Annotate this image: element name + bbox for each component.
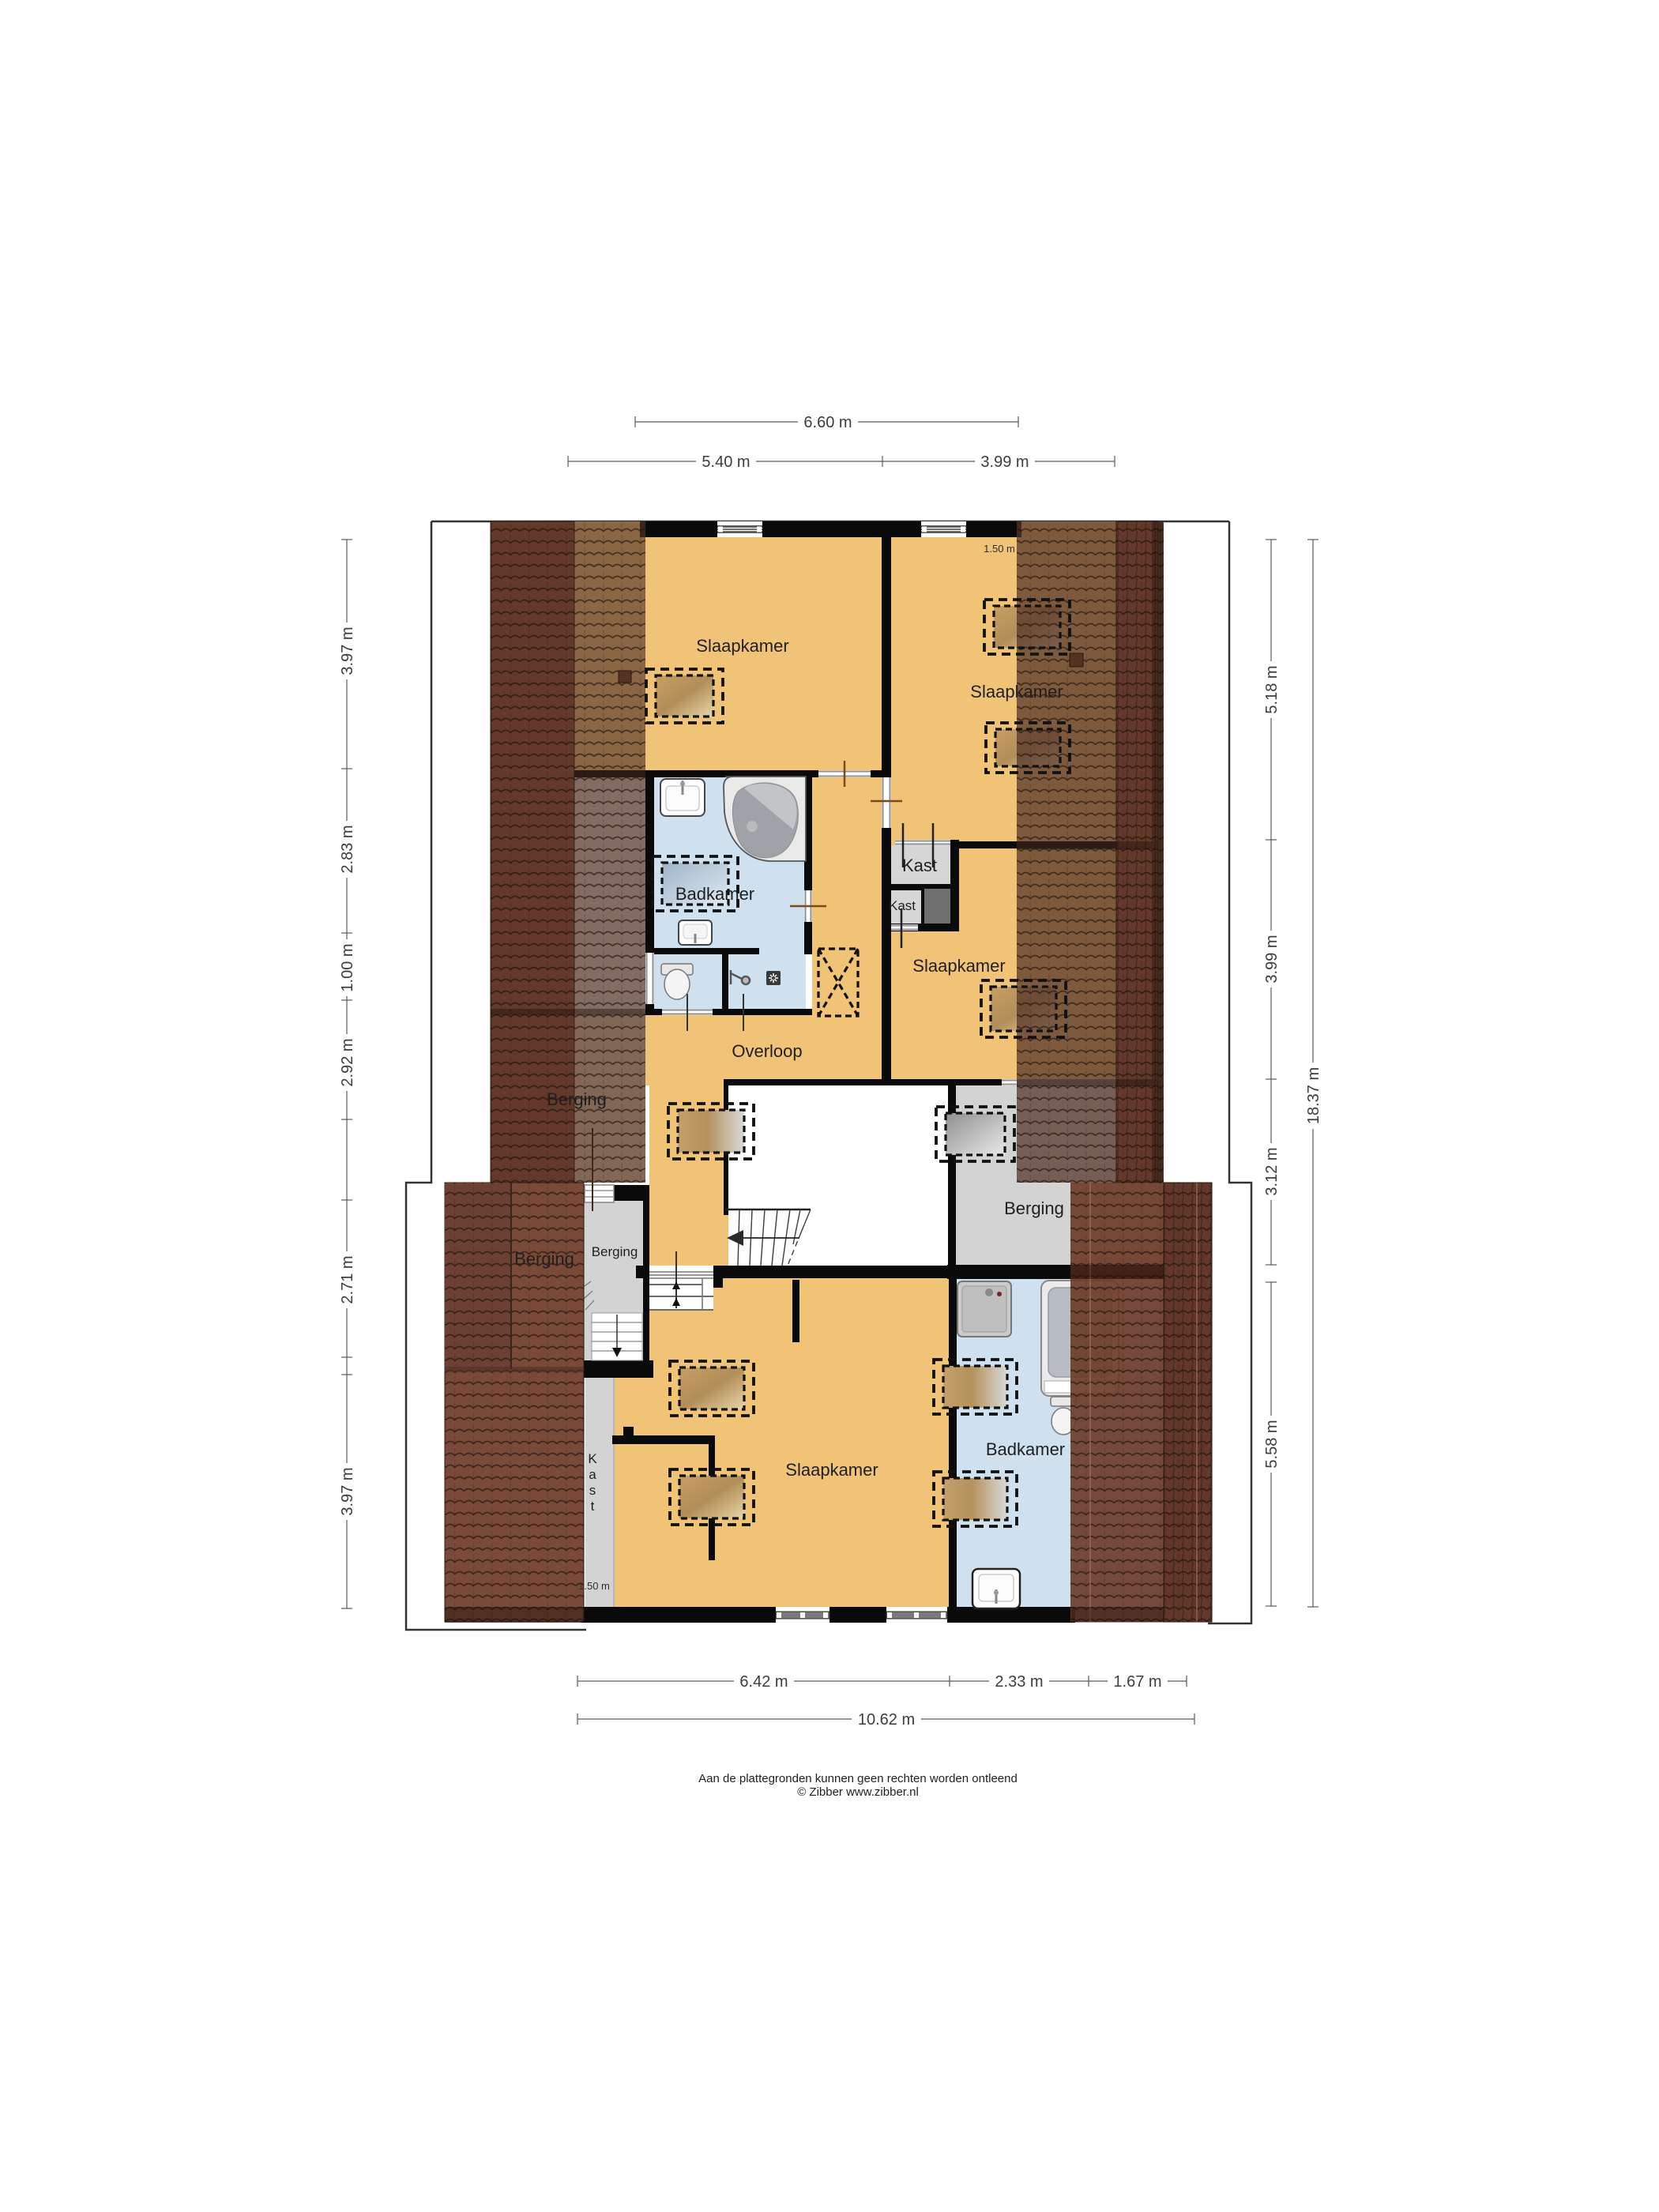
svg-text:Berging: Berging <box>592 1244 638 1259</box>
svg-text:Berging: Berging <box>514 1249 574 1269</box>
svg-text:3.97 m: 3.97 m <box>339 626 356 675</box>
svg-text:3.97 m: 3.97 m <box>339 1467 356 1515</box>
svg-text:3.12 m: 3.12 m <box>1263 1147 1281 1195</box>
svg-text:6.60 m: 6.60 m <box>803 414 852 431</box>
svg-text:a: a <box>589 1467 596 1482</box>
svg-text:2.33 m: 2.33 m <box>995 1673 1043 1691</box>
svg-text:Kast: Kast <box>902 856 937 875</box>
svg-text:18.37 m: 18.37 m <box>1305 1067 1322 1124</box>
svg-text:Slaapkamer: Slaapkamer <box>785 1460 878 1480</box>
svg-text:5.40 m: 5.40 m <box>702 453 750 471</box>
svg-text:1.50 m: 1.50 m <box>578 1580 610 1592</box>
svg-text:3.99 m: 3.99 m <box>980 453 1029 471</box>
svg-text:2.92 m: 2.92 m <box>339 1038 356 1086</box>
svg-text:K: K <box>588 1451 597 1466</box>
svg-text:Badkamer: Badkamer <box>675 884 754 904</box>
svg-text:5.58 m: 5.58 m <box>1263 1420 1281 1468</box>
svg-text:1.00 m: 1.00 m <box>339 943 356 991</box>
svg-text:2.71 m: 2.71 m <box>339 1255 356 1303</box>
svg-text:Slaapkamer: Slaapkamer <box>696 636 788 656</box>
svg-text:5.18 m: 5.18 m <box>1263 665 1281 713</box>
svg-text:s: s <box>589 1483 596 1498</box>
svg-text:© Zibber www.zibber.nl: © Zibber www.zibber.nl <box>797 1785 919 1799</box>
svg-text:Berging: Berging <box>1004 1198 1064 1218</box>
svg-text:Kast: Kast <box>889 898 916 913</box>
svg-text:Slaapkamer: Slaapkamer <box>912 956 1005 976</box>
svg-text:1.50 m: 1.50 m <box>984 543 1015 555</box>
svg-text:Aan de plattegronden kunnen ge: Aan de plattegronden kunnen geen rechten… <box>698 1772 1018 1785</box>
svg-text:Badkamer: Badkamer <box>986 1439 1065 1459</box>
svg-text:Slaapkamer: Slaapkamer <box>970 682 1063 702</box>
svg-text:Berging: Berging <box>547 1089 607 1109</box>
svg-text:Overloop: Overloop <box>732 1041 802 1061</box>
svg-text:10.62 m: 10.62 m <box>858 1711 915 1729</box>
svg-text:1.67 m: 1.67 m <box>1113 1673 1161 1691</box>
svg-text:t: t <box>591 1499 595 1514</box>
svg-text:3.99 m: 3.99 m <box>1263 935 1281 983</box>
svg-text:2.83 m: 2.83 m <box>339 825 356 873</box>
svg-text:6.42 m: 6.42 m <box>739 1673 788 1691</box>
